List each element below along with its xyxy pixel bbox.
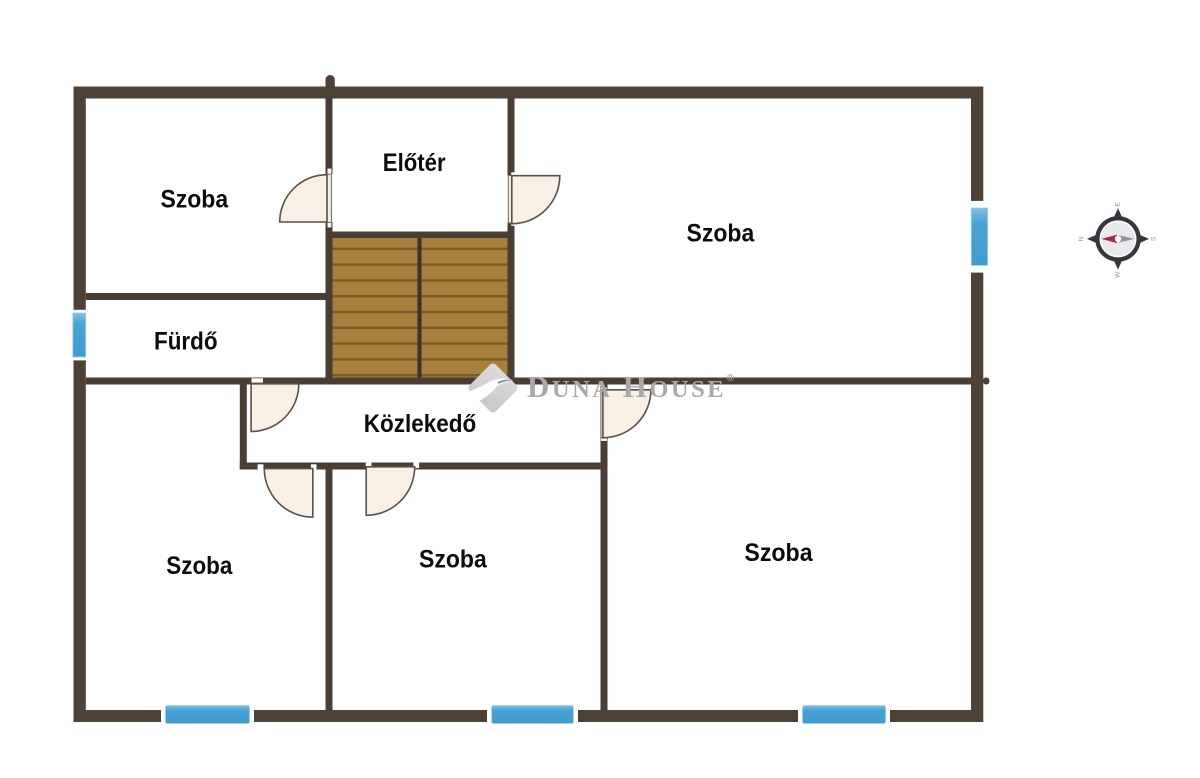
svg-text:®: ® — [727, 373, 737, 384]
svg-text:Előtér: Előtér — [383, 149, 446, 177]
svg-text:Szoba: Szoba — [744, 539, 813, 567]
svg-text:Szoba: Szoba — [166, 552, 233, 580]
svg-text:Fürdő: Fürdő — [154, 328, 218, 356]
svg-text:E: E — [1115, 202, 1122, 207]
svg-text:Szoba: Szoba — [160, 185, 229, 213]
svg-text:Szoba: Szoba — [687, 219, 756, 247]
svg-text:Szoba: Szoba — [419, 545, 488, 573]
svg-text:Közlekedő: Közlekedő — [364, 410, 477, 438]
svg-text:N: N — [1078, 236, 1085, 241]
svg-text:W: W — [1115, 271, 1122, 278]
svg-text:S: S — [1151, 236, 1158, 241]
